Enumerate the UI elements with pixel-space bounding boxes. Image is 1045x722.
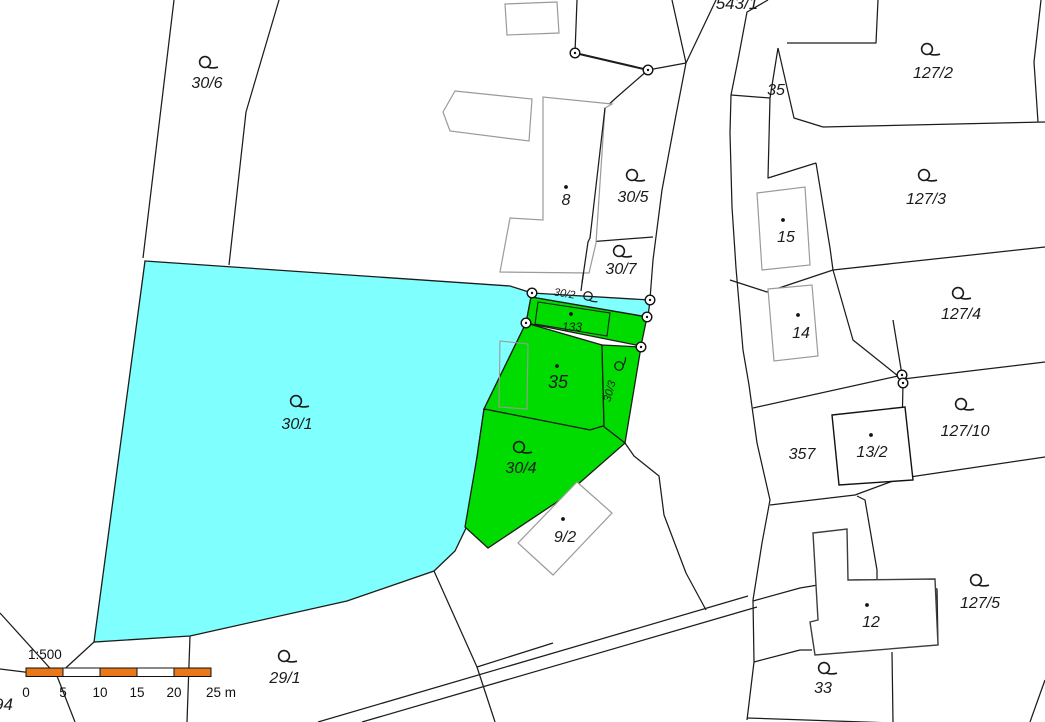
survey-point [645,295,655,305]
parcel-boundary-line-41 [362,607,757,722]
parcel-boundary-line-32 [1030,680,1045,722]
survey-point [636,342,646,352]
land-use-icon [956,399,974,410]
parcel-boundary-line-17 [1034,0,1041,122]
scale-tick-label: 5 [59,685,67,700]
land-use-icon [919,170,937,181]
building-center-dot [564,185,568,189]
parcel-boundary-line-18 [816,163,898,376]
parcel-boundary-line-39 [434,571,495,722]
land-use-icon [953,288,971,299]
building-center-dot [561,517,565,521]
building-center-dot [869,433,873,437]
parcel-boundary-line-4 [672,0,686,63]
parcel-boundary-line-16 [823,122,1045,127]
survey-point [643,65,653,75]
parcel-boundary-line-12 [731,95,816,178]
parcel-label-30-6: 30/6 [191,75,222,92]
parcel-boundary-line-2 [575,0,577,53]
parcel-label-127-5: 127/5 [960,595,1000,612]
parcel-boundary-line-10 [625,443,706,610]
parcel-boundary-line-3 [575,53,648,70]
land-use-icon [627,170,645,181]
parcel-label-94: 94 [0,695,13,714]
scale-bar-segment [174,668,211,677]
parcel-label-35-green: 35 [548,372,569,392]
scale-bar-segment [100,668,137,677]
parcel-boundary-line-30 [754,650,812,662]
survey-point [527,288,537,298]
scale-ratio-label: 1:500 [28,647,62,662]
survey-point [898,378,908,388]
building-outline-1 [443,91,532,141]
parcel-boundary-line-40 [477,643,553,667]
land-use-icon [819,663,837,674]
parcel-boundary-line-21 [753,376,898,408]
survey-point [521,318,531,328]
scale-tick-label: 10 [92,685,107,700]
building-center-dot [555,364,559,368]
scale-tick-label: 25 m [206,685,236,700]
parcel-label-29-1: 29/1 [268,670,300,687]
cadastral-map-viewport: 30/6543/1127/235830/530/715127/314127/43… [0,0,1045,722]
parcel-label-30-7: 30/7 [605,261,637,278]
land-use-icon [279,651,297,662]
parcel-label-30-4: 30/4 [505,460,536,477]
parcel-label-33: 33 [814,680,832,697]
parcel-boundary-line-22 [893,320,902,375]
parcel-label-8: 8 [562,192,571,209]
scale-tick-label: 0 [22,685,30,700]
cadastral-map: 30/6543/1127/235830/530/715127/314127/43… [0,0,1045,722]
building-center-dot [781,218,785,222]
scale-tick-label: 15 [129,685,144,700]
parcel-boundary-line-25 [903,457,1045,478]
parcel-boundary-line-38 [187,636,190,722]
land-use-icon [971,575,989,586]
parcel-boundary-line-27 [853,496,877,580]
parcel-label-127-10: 127/10 [941,423,990,440]
parcel-label-13-2: 13/2 [856,444,887,461]
parcel-boundary-line-29 [892,652,893,722]
parcel-label-30-5: 30/5 [617,189,648,206]
parcel-label-12: 12 [862,614,880,631]
building-center-dot [569,312,573,316]
parcel-label-127-3: 127/3 [906,191,946,208]
scale-bar: 1:5000510152025 m [22,647,236,700]
parcel-boundary-line-20 [833,247,1045,270]
parcel-label-35-right: 35 [767,82,785,99]
scale-tick-label: 20 [166,685,181,700]
parcel-label-133: 133 [562,320,582,334]
parcel-boundary-line-34 [0,613,57,676]
parcel-boundary-line-8 [650,63,686,299]
land-use-icon [614,246,632,257]
scale-bar-segment [26,668,63,677]
parcel-boundary-line-31 [747,718,893,722]
parcel-label-15: 15 [777,229,795,246]
parcel-boundary-line-5 [686,0,716,63]
parcel-label-9-2: 9/2 [554,529,576,546]
land-use-icon [200,57,218,68]
building-outline-0 [505,2,559,35]
parcel-label-14: 14 [792,325,810,342]
building-outline-7 [810,529,938,655]
building-center-dot [865,603,869,607]
parcel-boundary-line-24 [903,362,1045,379]
parcel-label-357: 357 [789,446,817,463]
parcel-label-30-1: 30/1 [281,416,312,433]
parcel-label-127-2: 127/2 [913,65,953,82]
parcel-boundary-line-0 [143,0,174,258]
building-outline-4 [768,285,818,361]
parcel-boundary-line-9 [588,237,653,242]
building-center-dot [796,313,800,317]
land-use-icon [922,44,940,55]
parcel-label-543-1: 543/1 [716,0,759,13]
parcel-boundary-line-1 [229,0,279,265]
survey-point [570,48,580,58]
parcel-label-127-4: 127/4 [941,306,981,323]
survey-point [642,312,652,322]
parcel-boundary-line-6 [648,63,686,70]
parcel-boundary-line-42 [318,596,748,722]
parcel-boundary-line-11 [730,0,770,720]
parcel-boundary-line-15 [787,0,878,43]
